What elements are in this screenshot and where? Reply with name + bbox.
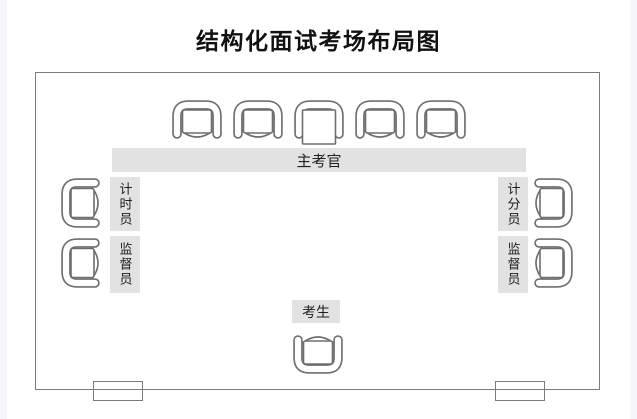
examiner-chair-icon: [352, 97, 408, 147]
scorer-label: 计分员: [507, 182, 520, 227]
supervisor-chair-icon: [58, 235, 108, 291]
chief-examiner-chair-icon: [291, 97, 347, 147]
timekeeper-chair-icon: [58, 175, 108, 231]
scorer-label-box: 计分员: [498, 177, 528, 231]
timekeeper-label-box: 计时员: [110, 177, 140, 231]
page-edge-left: [0, 0, 7, 419]
door-icon: [93, 381, 143, 401]
examiner-chair-icon: [413, 97, 469, 147]
supervisor-left-label-box: 监督员: [110, 236, 140, 293]
examiner-label: 主考官: [296, 150, 341, 171]
examiner-chair-icon: [169, 97, 225, 147]
supervisor-chair-icon: [526, 235, 576, 291]
candidate-chair-icon: [290, 327, 346, 377]
supervisor-left-label: 监督员: [119, 242, 132, 287]
candidate-label-box: 考生: [292, 300, 340, 323]
interview-room-layout-diagram: 结构化面试考场布局图 主考官 计时员 监督员 计分员 监督员 考生: [0, 0, 637, 419]
timekeeper-label: 计时员: [119, 182, 132, 227]
supervisor-right-label: 监督员: [507, 242, 520, 287]
candidate-label: 考生: [302, 302, 330, 322]
scorer-chair-icon: [526, 175, 576, 231]
examiner-table: 主考官: [112, 148, 526, 172]
supervisor-right-label-box: 监督员: [498, 236, 528, 293]
door-icon: [495, 381, 545, 401]
examiner-chair-icon: [230, 97, 286, 147]
page-edge-right: [630, 0, 637, 419]
diagram-title: 结构化面试考场布局图: [0, 25, 637, 57]
